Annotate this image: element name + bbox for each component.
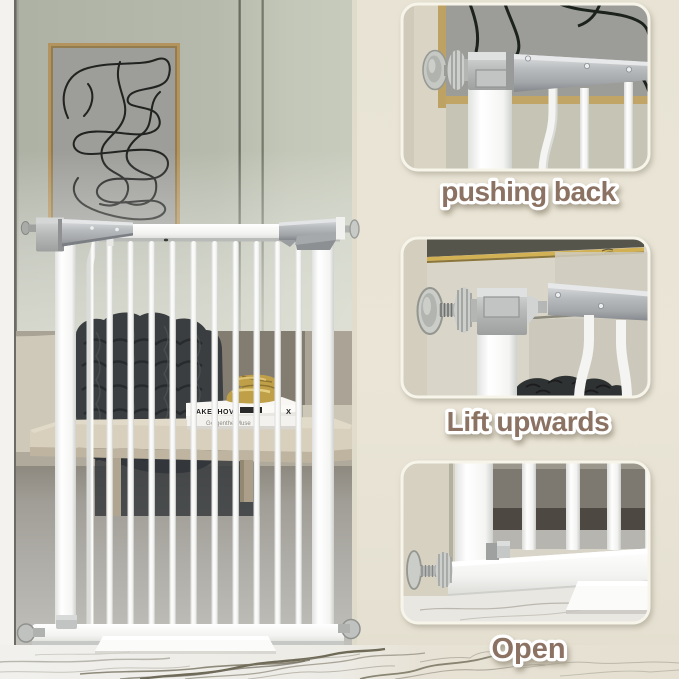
svg-text:Lift upwards: Lift upwards	[447, 406, 610, 437]
svg-text:Open: Open	[491, 633, 565, 665]
svg-text:X: X	[286, 407, 291, 416]
svg-text:pushing back: pushing back	[441, 176, 616, 207]
